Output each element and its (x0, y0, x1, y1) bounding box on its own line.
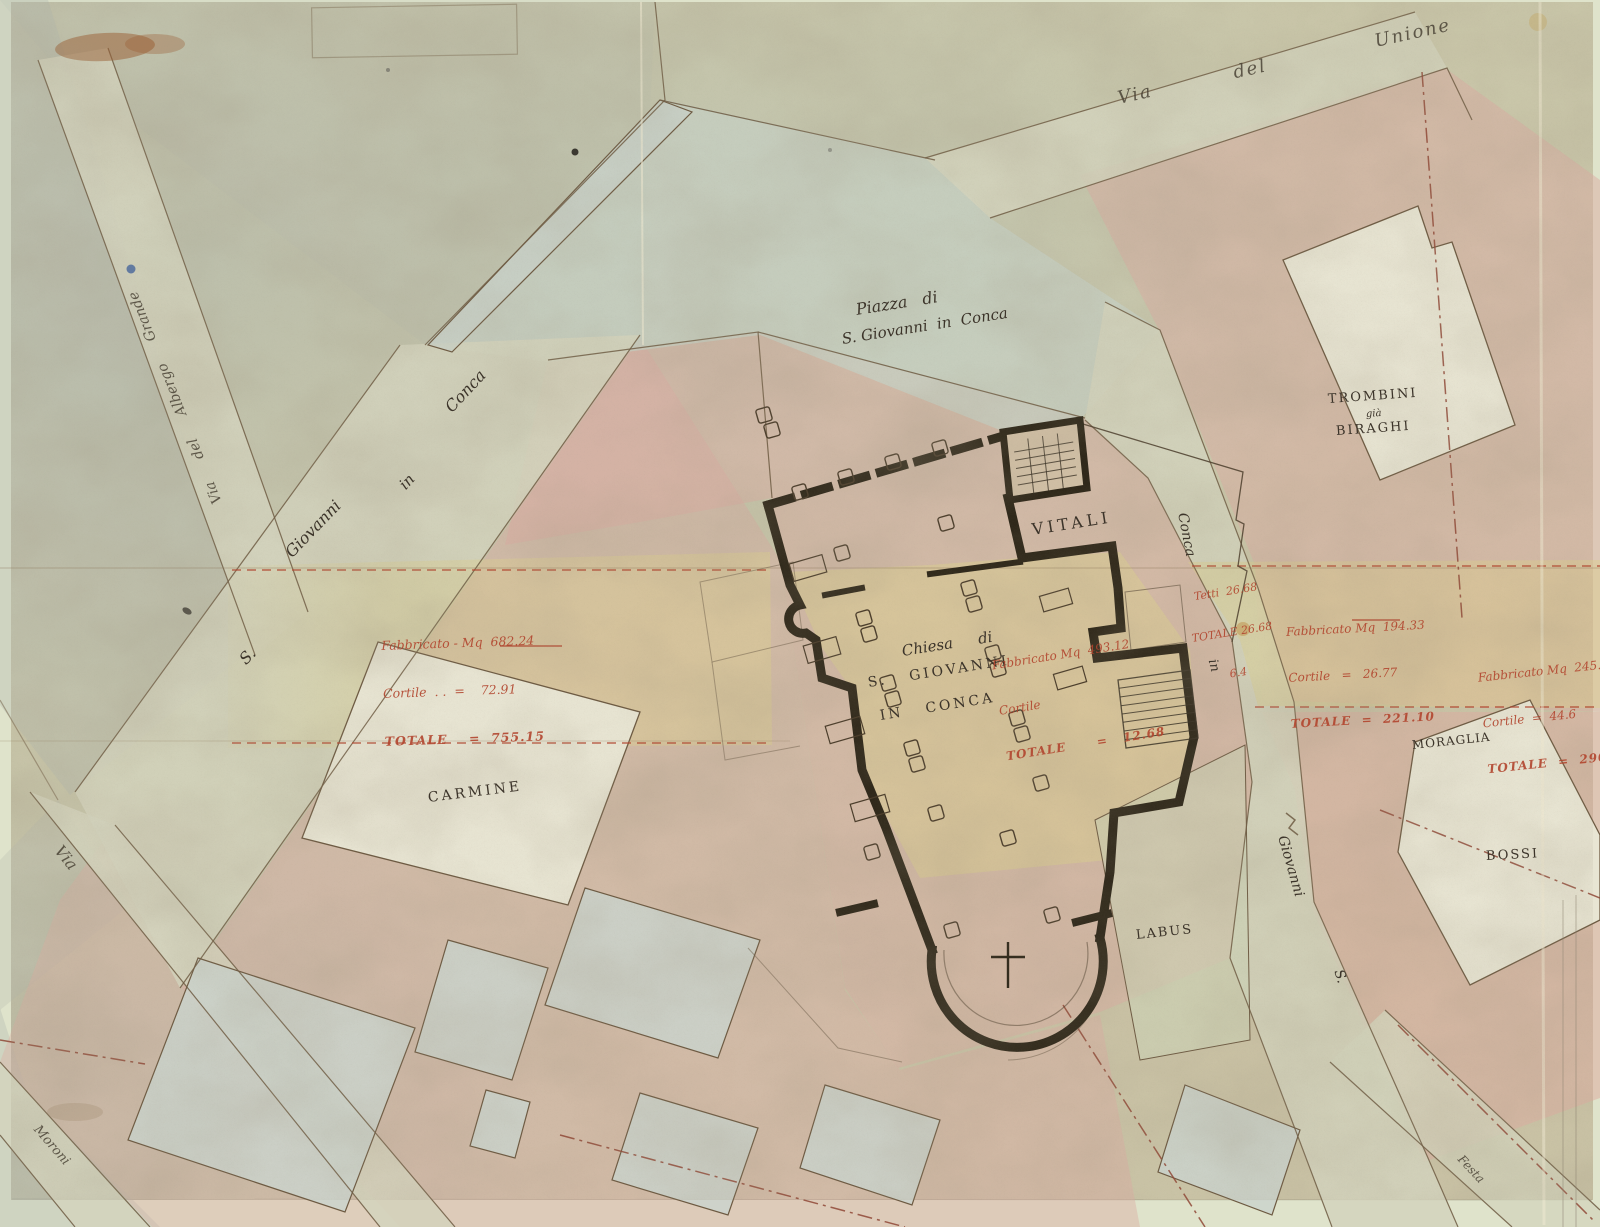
map-screenshot: Via del Unione Piazza di S. Giovanni in … (0, 0, 1600, 1227)
map-canvas (0, 0, 1600, 1227)
paper-texture (11, 2, 1593, 1200)
